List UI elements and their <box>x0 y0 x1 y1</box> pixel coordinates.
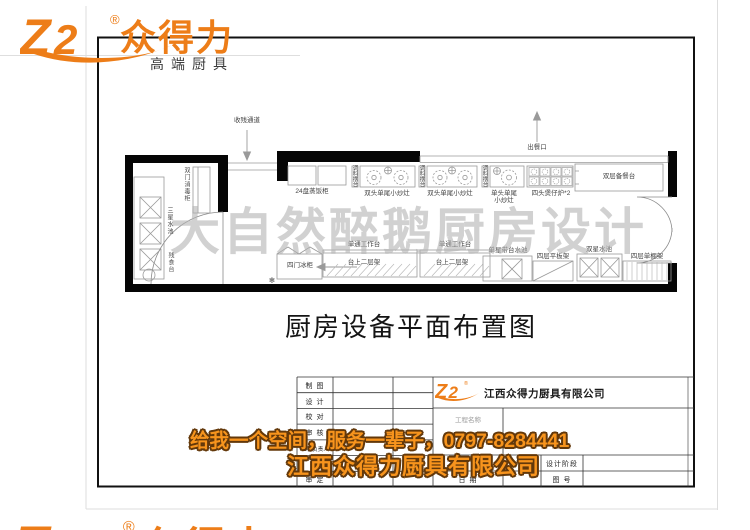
label-shelf-on-table-2: 台上二层架 <box>436 259 469 266</box>
titleblock-company-name: 江西众得力厨具有限公司 <box>484 386 605 401</box>
label-spice-counter-2: 调料摆台 <box>418 165 424 187</box>
titleblock-row-drafter: 制 图 <box>306 381 325 391</box>
titleblock-logo: Z 2 ® <box>435 378 481 404</box>
logo-brand-name-bottom: 众得力 <box>135 525 275 530</box>
label-steamer: 24盘蒸饭柜 <box>295 188 328 195</box>
label-spice-counter-3: 调料摆台 <box>481 165 487 187</box>
label-rack-shelf: 四层单棚架 <box>631 253 664 260</box>
drawing-title: 厨房设备平面布置图 <box>285 307 537 344</box>
promo-company-name: 江西众得力厨具有限公司 <box>287 449 540 481</box>
logo-mark2: 2 <box>53 16 77 63</box>
titleblock-row-designer: 设 计 <box>306 397 325 407</box>
label-prep-counter: 双层备餐台 <box>603 173 636 180</box>
titleblock-project-name-label: 工程名称 <box>455 414 481 424</box>
label-spice-counter-1: 调料摆台 <box>351 165 357 187</box>
logo-mark-bottom: Z <box>12 514 52 530</box>
mini-logo-mark: Z <box>435 381 448 403</box>
mini-logo-reg: ® <box>464 380 468 387</box>
titleblock-stage-label: 设计阶段 <box>546 459 578 469</box>
logo-mark2-bottom: 2 <box>53 522 83 530</box>
brand-logo: Z 2 ® 众得力 高端厨具 <box>20 8 235 72</box>
logo-brand-name: 众得力 <box>120 17 234 58</box>
label-triple-sink: 三星水池 <box>166 207 172 235</box>
brand-logo-bottom-cropped: Z 2 ® 众得力 <box>12 512 277 530</box>
label-wok-stove-2: 双头单尾小炒灶 <box>427 190 473 197</box>
label-shelf-on-table-1: 台上二层架 <box>348 259 381 266</box>
logo-tagline: 高端厨具 <box>150 56 234 72</box>
label-wok-stove-3: 单头单尾小炒灶 <box>489 190 519 204</box>
logo-mark: Z <box>20 9 53 65</box>
label-fridge: 四门冰柜 <box>287 262 313 269</box>
label-serving-port: 出餐口 <box>527 144 547 151</box>
label-double-sink: 双星水池 <box>586 246 612 253</box>
label-waste-passage: 收残通道 <box>234 117 260 124</box>
label-claypot-stove: 四头煲仔炉*2 <box>532 190 571 197</box>
label-worktable-2: 单通工作台 <box>439 241 472 248</box>
mini-logo-mark2: 2 <box>448 383 459 402</box>
snowflake-icon: ❄ <box>269 277 276 286</box>
label-wok-stove-1: 双头单尾小炒灶 <box>364 190 410 197</box>
label-waste-table: 残食台 <box>167 252 173 273</box>
label-sterilizer: 双门消毒柜 <box>183 167 189 202</box>
titleblock-row-checker: 校 对 <box>306 412 325 422</box>
titleblock-drawing-no-label: 图 号 <box>553 475 572 485</box>
label-worktable-1: 单通工作台 <box>348 241 381 248</box>
registered-icon: ® <box>110 12 120 27</box>
registered-icon-bottom: ® <box>123 518 135 530</box>
label-single-sink: 单星带台水池 <box>489 247 528 254</box>
label-flat-shelf: 四层平板架 <box>537 253 570 260</box>
walls <box>125 151 677 292</box>
